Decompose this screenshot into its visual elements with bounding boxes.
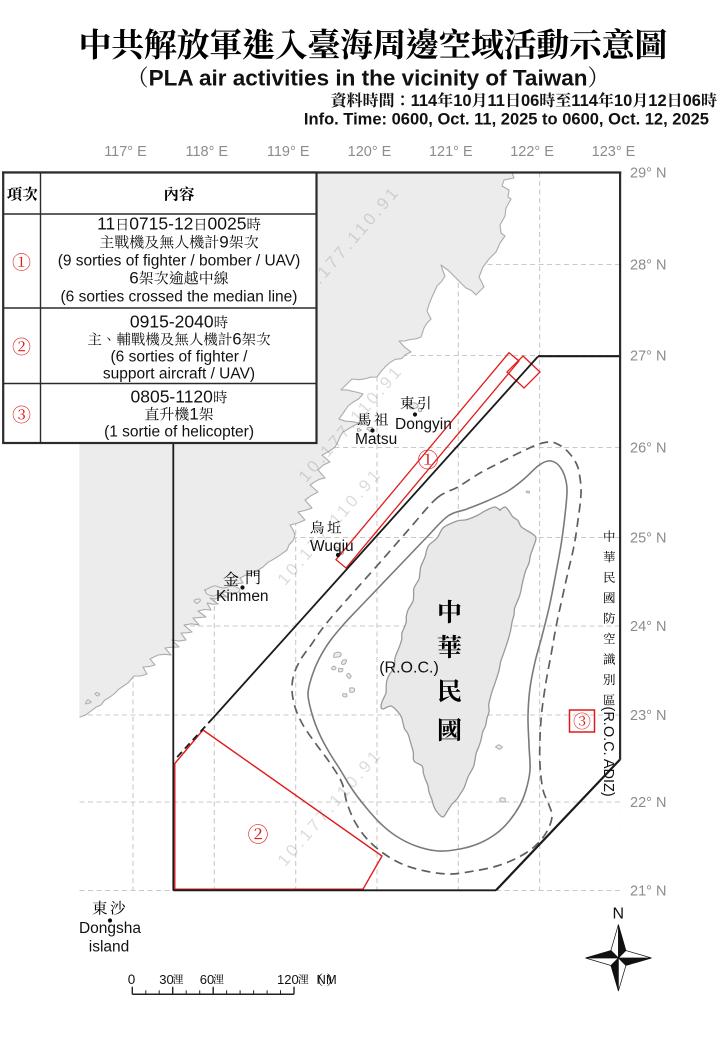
svg-text:0915-2040: 0915-2040	[130, 312, 214, 332]
svg-text:9: 9	[219, 233, 228, 252]
svg-text:Matsu: Matsu	[355, 431, 397, 448]
svg-text:island: island	[89, 939, 130, 956]
svg-text:(6 sorties of fighter /: (6 sorties of fighter /	[111, 349, 249, 366]
svg-text:0715-12: 0715-12	[129, 214, 193, 234]
svg-text:Info. Time: 0600, Oct. 11, 202: Info. Time: 0600, Oct. 11, 2025 to 0600,…	[304, 111, 709, 129]
svg-text:10: 10	[614, 92, 632, 110]
svg-text:118° E: 118° E	[185, 144, 228, 160]
svg-text:25° N: 25° N	[630, 531, 666, 547]
svg-text:0: 0	[128, 972, 136, 987]
svg-text:26° N: 26° N	[630, 441, 666, 457]
svg-text:(R.O.C. ADIZ): (R.O.C. ADIZ)	[600, 707, 616, 797]
svg-text:12: 12	[648, 92, 666, 110]
svg-text:PLA air activities in the vici: PLA air activities in the vicinity of Ta…	[149, 66, 588, 91]
svg-text:support aircraft / UAV): support aircraft / UAV)	[103, 366, 255, 383]
svg-text:10: 10	[453, 92, 471, 110]
svg-text:21° N: 21° N	[630, 884, 666, 900]
svg-text:Kinmen: Kinmen	[216, 588, 269, 605]
svg-text:23° N: 23° N	[630, 708, 666, 724]
svg-text:(R.O.C.): (R.O.C.)	[379, 660, 439, 677]
svg-text:114: 114	[411, 92, 438, 110]
svg-text:123° E: 123° E	[592, 144, 636, 160]
svg-text:122° E: 122° E	[510, 144, 554, 160]
svg-text:120: 120	[277, 972, 299, 987]
svg-text:6: 6	[129, 269, 138, 288]
svg-text:1: 1	[189, 405, 198, 424]
svg-text:11: 11	[97, 214, 115, 234]
svg-text:22° N: 22° N	[630, 795, 666, 811]
svg-text:(6 sorties crossed the median: (6 sorties crossed the median line)	[61, 289, 298, 306]
svg-text:29° N: 29° N	[630, 166, 666, 182]
svg-text:(1 sortie of helicopter): (1 sortie of helicopter)	[104, 424, 254, 441]
svg-text:121° E: 121° E	[429, 144, 473, 160]
svg-text:6: 6	[232, 331, 241, 349]
svg-text:119° E: 119° E	[267, 144, 310, 160]
svg-text:30: 30	[159, 972, 173, 987]
svg-text:(9 sorties of fighter / bomber: (9 sorties of fighter / bomber / UAV)	[58, 253, 301, 270]
svg-text:0805-1120: 0805-1120	[131, 387, 214, 407]
svg-text:120° E: 120° E	[348, 144, 392, 160]
svg-text:24° N: 24° N	[630, 619, 666, 635]
svg-text:Dongyin: Dongyin	[395, 416, 452, 433]
svg-text:NM: NM	[317, 972, 337, 987]
svg-text:114: 114	[571, 92, 598, 110]
svg-text:60: 60	[200, 972, 214, 987]
svg-text:27° N: 27° N	[630, 349, 666, 365]
svg-text:06: 06	[521, 92, 539, 110]
svg-text:117° E: 117° E	[104, 144, 147, 160]
svg-text:Wuqiu: Wuqiu	[310, 538, 354, 555]
svg-text:11: 11	[488, 92, 505, 110]
svg-text:N: N	[613, 906, 625, 923]
svg-text:28° N: 28° N	[630, 258, 666, 274]
svg-text:0025: 0025	[208, 214, 247, 234]
svg-text:06: 06	[683, 92, 701, 110]
